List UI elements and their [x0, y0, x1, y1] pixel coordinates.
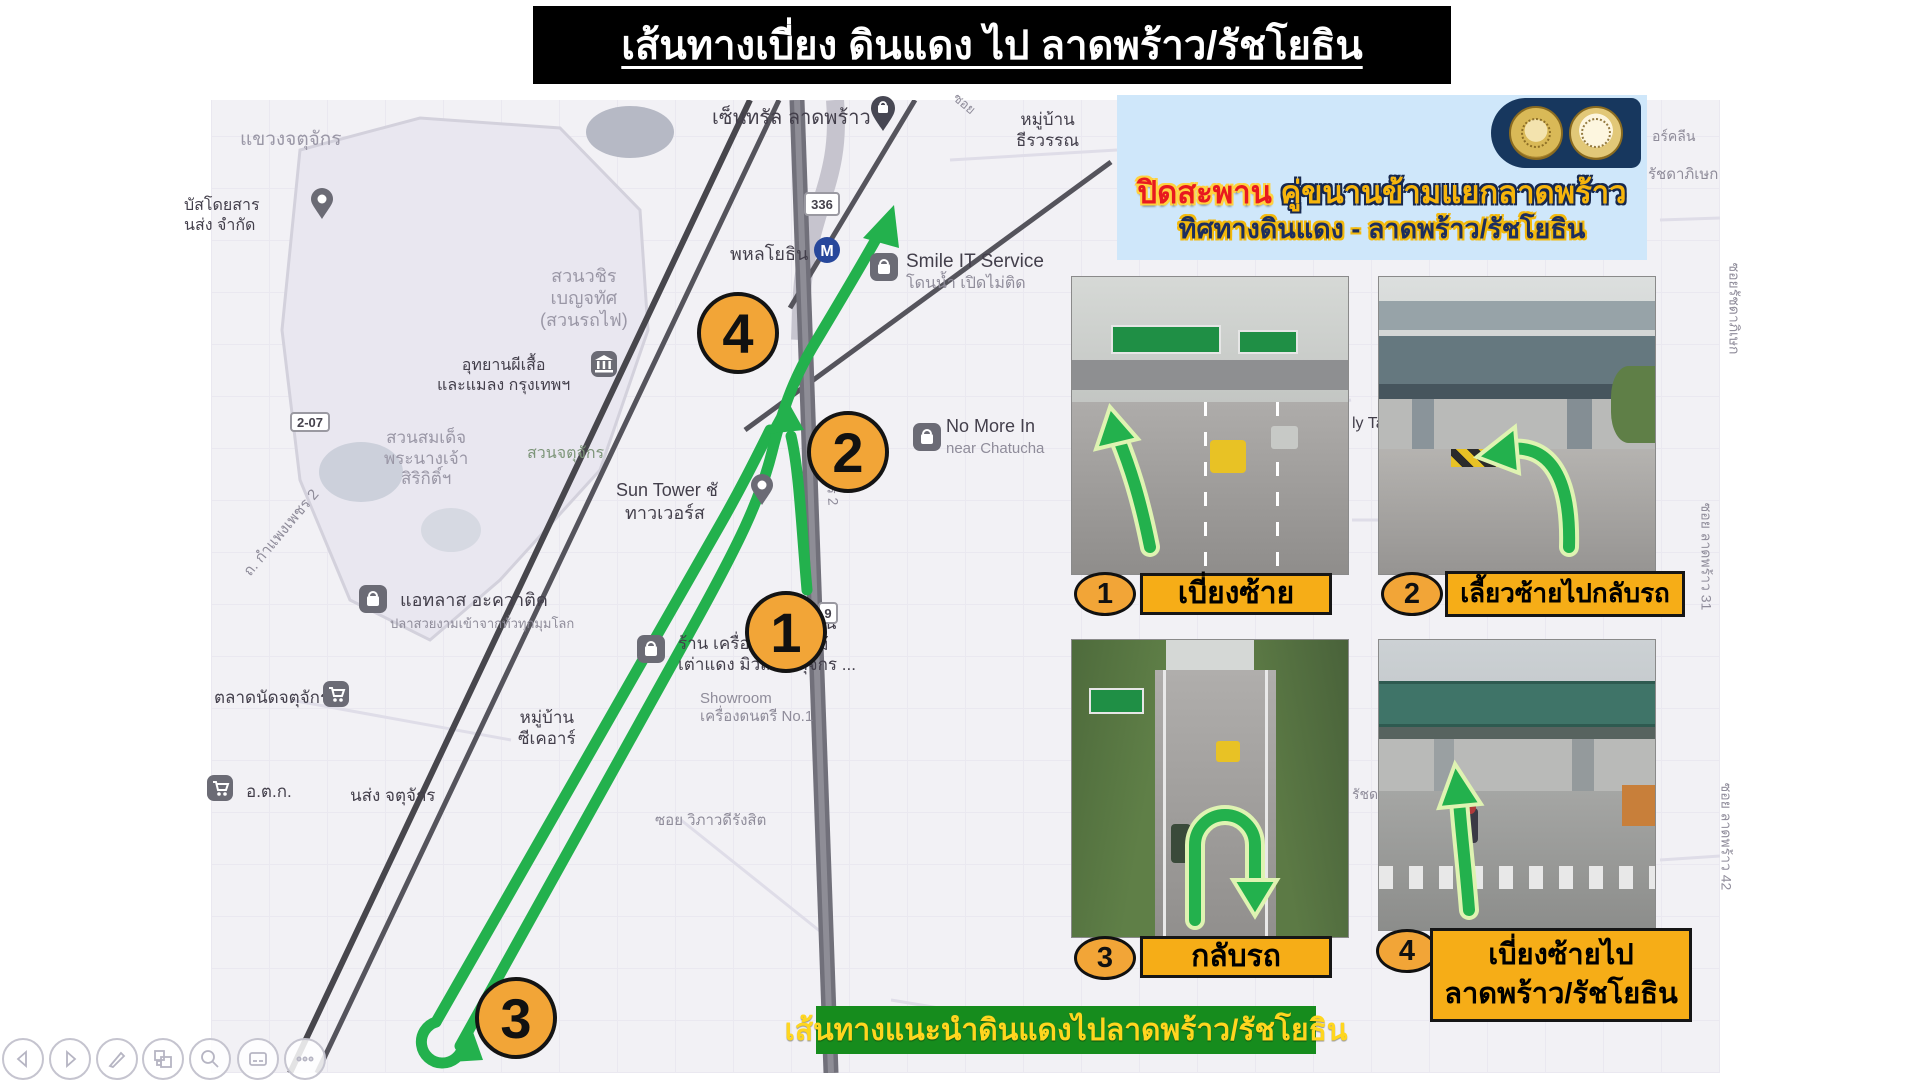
- map-label: รัชดาภิเษก: [1648, 166, 1718, 184]
- previous-slide-button[interactable]: [2, 1038, 44, 1080]
- map-label: ซอย ลาดพร้าว 31: [1697, 503, 1714, 610]
- slide-title: เส้นทางเบี่ยง ดินแดง ไป ลาดพร้าว/รัชโยธิ…: [621, 13, 1362, 77]
- caption-4: เบี่ยงซ้ายไป ลาดพร้าว/รัชโยธิน: [1430, 928, 1692, 1022]
- road-shield-336: 336: [804, 192, 840, 216]
- map-label: ซอย ลาดพร้าว 42: [1717, 783, 1734, 890]
- street-photo-2: [1379, 277, 1655, 574]
- smile-it-service-icon: [869, 252, 899, 287]
- pen-tools-button[interactable]: [96, 1038, 138, 1080]
- more-options-button[interactable]: [284, 1038, 326, 1080]
- map-label: ซอยรัชดาภิเษก: [1725, 263, 1742, 355]
- photo1-highway-sign: [1111, 325, 1221, 355]
- pen-icon: [106, 1048, 128, 1070]
- park-pond: [586, 106, 674, 158]
- recommended-route-text: เส้นทางแนะนำดินแดงไปลาดพร้าว/รัชโยธิน: [785, 1007, 1348, 1054]
- caption-1-text: เบี่ยงซ้าย: [1178, 574, 1294, 615]
- prev-icon: [12, 1048, 34, 1070]
- slide-title-bar: เส้นทางเบี่ยง ดินแดง ไป ลาดพร้าว/รัชโยธิ…: [533, 6, 1451, 84]
- route-marker-4: 4: [697, 292, 779, 374]
- map-label: near Chatucha: [946, 440, 1044, 458]
- notice-closed-text: ปิดสะพาน: [1137, 175, 1271, 210]
- road-shield-2-07: 2-07: [290, 412, 330, 432]
- photo3-taxi: [1216, 741, 1241, 762]
- caption-4-line1: เบี่ยงซ้ายไป: [1488, 936, 1633, 975]
- map-label: เซ็นทรัล ลาดพร้าว: [712, 106, 871, 130]
- central-ladprao-pin: [870, 96, 896, 137]
- map-label: อร์คลีน: [1652, 128, 1695, 145]
- photo4-bridge-underside: [1379, 727, 1655, 739]
- caption-1: เบี่ยงซ้าย: [1140, 573, 1332, 615]
- svg-text:M: M: [820, 243, 833, 260]
- map-label: นส่ง จตุจักร: [350, 786, 435, 807]
- atlas-aquatic-icon: [358, 584, 388, 619]
- slide: แขวงจตุจักรบัสโดยสารนส่ง จำกัดเซ็นทรัล ล…: [0, 0, 1920, 1080]
- more-icon: [294, 1048, 316, 1070]
- photo4-elevated-bridge: [1379, 681, 1655, 727]
- map-label: หมู่บ้านซีเคอาร์: [518, 708, 576, 749]
- map-label: ตลาดนัดจตุจักร: [214, 688, 329, 709]
- zoom-icon: [199, 1048, 221, 1070]
- photo4-pier: [1572, 739, 1594, 791]
- photo1-taxi: [1210, 440, 1246, 473]
- photo2-turn-left-arrow: [1449, 387, 1599, 557]
- chatuchak-market-icon: [322, 680, 350, 713]
- map-label: No More In: [946, 416, 1035, 438]
- route-marker-2: 2: [807, 411, 889, 493]
- captions-icon: [247, 1048, 269, 1070]
- taodang-music-icon: [636, 634, 666, 669]
- slides-icon: [152, 1048, 174, 1070]
- photo3-road-sign: [1089, 688, 1144, 715]
- map-label: สวนวชิรเบญจทัศ(สวนรถไฟ): [540, 266, 628, 332]
- notice-line2: ทิศทางดินแดง - ลาดพร้าว/รัชโยธิน: [1117, 207, 1647, 250]
- photo1-highway-sign: [1238, 330, 1299, 354]
- caption-2-text: เลี้ยวซ้ายไปกลับรถ: [1460, 576, 1670, 611]
- map-label: อุทยานผีเสื้อและแมลง กรุงเทพฯ: [437, 356, 570, 395]
- no-more-icon: [912, 422, 942, 457]
- map-label: แขวงจตุจักร: [240, 128, 342, 151]
- street-photo-4: [1379, 640, 1655, 930]
- route-marker-3: 3: [475, 977, 557, 1059]
- map-label: อ.ต.ก.: [246, 782, 292, 803]
- caption-number-4: 4: [1376, 929, 1438, 973]
- map-label: Showroomเครื่องดนตรี No.1: [700, 690, 813, 727]
- map-label: แอทลาส อะควาติค: [400, 590, 548, 612]
- photo2-upper-deck: [1379, 301, 1655, 331]
- agency-seal-chip: [1491, 98, 1641, 168]
- map-label: ซอย วิภาวดีรังสิต: [655, 812, 766, 830]
- otk-market-icon: [206, 774, 234, 807]
- photo2-foliage: [1611, 366, 1655, 443]
- caption-4-line2: ลาดพร้าว/รัชโยธิน: [1444, 975, 1678, 1014]
- caption-3: กลับรถ: [1140, 936, 1332, 978]
- map-label: โดนน้ำ เปิดไม่ติด: [906, 274, 1026, 294]
- photo3-uturn-arrow: [1160, 790, 1290, 930]
- map-label: บัสโดยสารนส่ง จำกัด: [184, 196, 260, 235]
- closure-notice-banner: ปิดสะพาน คู่ขนานข้ามแยกลาดพร้าว ทิศทางดิ…: [1117, 95, 1647, 260]
- department-of-highways-seal-icon: [1569, 106, 1623, 160]
- photo4-straight-arrow: [1409, 740, 1519, 920]
- photo1-bear-left-arrow: [1080, 387, 1190, 557]
- map-label: รัชด: [1352, 786, 1378, 803]
- caption-number-1: 1: [1074, 572, 1136, 616]
- street-photo-3: [1072, 640, 1348, 937]
- photo4-barrier: [1622, 785, 1655, 826]
- toggle-subtitles-button[interactable]: [237, 1038, 279, 1080]
- zoom-slide-button[interactable]: [189, 1038, 231, 1080]
- photo3-trees-left: [1072, 640, 1166, 937]
- next-slide-button[interactable]: [49, 1038, 91, 1080]
- caption-2: เลี้ยวซ้ายไปกลับรถ: [1445, 571, 1685, 617]
- thai-government-seal-icon: [1509, 106, 1563, 160]
- phahonyothin-metro-icon: M: [813, 236, 841, 269]
- photo2-overpass-beam: [1379, 336, 1655, 384]
- butterfly-garden-icon: [590, 350, 618, 383]
- sun-tower-pin: [750, 474, 774, 511]
- next-icon: [59, 1048, 81, 1070]
- caption-3-text: กลับรถ: [1191, 937, 1281, 978]
- photo1-overpass: [1072, 360, 1348, 390]
- map-label: ทาวเวอร์ส: [625, 503, 705, 525]
- recommended-route-banner: เส้นทางแนะนำดินแดงไปลาดพร้าว/รัชโยธิน: [816, 1006, 1316, 1054]
- street-photo-1: [1072, 277, 1348, 574]
- map-label: ปลาสวยงามเข้าจากทั่วทุกมุมโลก: [390, 616, 574, 632]
- caption-number-3: 3: [1074, 936, 1136, 980]
- map-label: สวนจตุจักร: [527, 444, 604, 464]
- photo1-lane-line: [1204, 402, 1207, 574]
- park-pond: [421, 508, 481, 552]
- photo1-car: [1271, 426, 1299, 450]
- route-marker-1: 1: [745, 591, 827, 673]
- see-all-slides-button[interactable]: [142, 1038, 184, 1080]
- map-label: Sun Tower ชั: [616, 480, 718, 502]
- map-label: พหลโยธิน: [730, 244, 808, 266]
- notice-bridge-text: คู่ขนานข้ามแยกลาดพร้าว: [1272, 175, 1627, 210]
- map-label: หมู่บ้านธีรวรรณ: [1016, 110, 1079, 151]
- map-label: Smile IT Service: [906, 250, 1044, 273]
- caption-number-2: 2: [1381, 572, 1443, 616]
- bus-terminal-pin: [310, 188, 334, 225]
- map-label: สวนสมเด็จพระนางเจ้าสิริกิติ์ฯ: [384, 428, 468, 490]
